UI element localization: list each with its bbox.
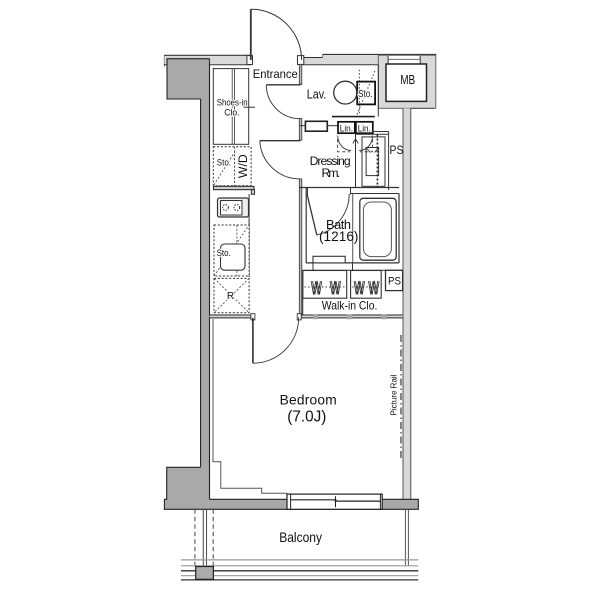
svg-text:MB: MB	[400, 73, 415, 87]
svg-text:Lin.: Lin.	[358, 124, 371, 134]
svg-text:PS: PS	[388, 276, 401, 288]
svg-text:(7.0J): (7.0J)	[287, 408, 326, 425]
svg-text:Picture Rail: Picture Rail	[390, 374, 399, 415]
svg-text:W/D: W/D	[236, 154, 250, 178]
svg-text:Bedroom: Bedroom	[280, 392, 337, 407]
svg-text:PS: PS	[390, 143, 404, 157]
svg-text:Balcony: Balcony	[279, 530, 322, 545]
svg-text:Lin.: Lin.	[340, 124, 353, 134]
svg-text:Entrance: Entrance	[253, 67, 298, 81]
svg-text:Rm.: Rm.	[322, 166, 341, 180]
svg-text:Clo.: Clo.	[224, 108, 239, 119]
svg-text:R: R	[227, 291, 234, 302]
svg-text:(1216): (1216)	[319, 229, 359, 244]
svg-text:Sto.: Sto.	[358, 89, 373, 100]
svg-text:Sto.: Sto.	[217, 248, 231, 258]
svg-text:Lav.: Lav.	[307, 88, 327, 102]
svg-text:Shoes-in: Shoes-in	[217, 97, 248, 108]
svg-text:Walk-in Clo.: Walk-in Clo.	[322, 299, 378, 313]
svg-text:Sto.: Sto.	[217, 158, 231, 168]
